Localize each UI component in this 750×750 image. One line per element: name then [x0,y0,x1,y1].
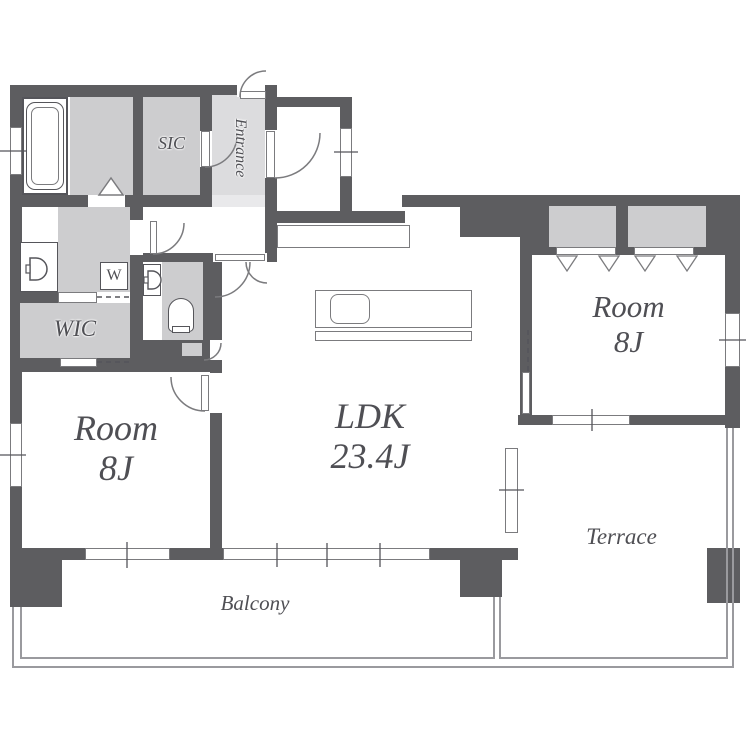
balcony-label: Balcony [60,592,450,620]
door-leaf-entrance [266,131,275,178]
room-right-name: Room [592,289,664,324]
washing-machine-label: W [106,267,121,284]
ldk-name: LDK [335,396,405,436]
window [85,548,170,560]
room-left-label: Room 8J [22,408,210,508]
wall-segment [707,548,740,603]
wall-segment [203,262,210,348]
wall-segment [460,550,502,597]
doorway-gap [88,195,125,207]
window [10,423,22,487]
wall-segment [270,211,410,223]
kitchen-sink [330,294,370,324]
corridor-floor [143,207,265,253]
ldk-floor [460,237,518,262]
room-left-size: 8J [99,448,133,488]
closet-shelf [634,247,694,255]
door-leaf [201,375,209,411]
closet-shelf [556,247,616,255]
door-leaf-ldk [215,254,265,261]
bathroom-dry-area-floor [70,97,133,195]
entrance-hall-floor [277,107,340,211]
room-right-size: 8J [614,324,643,359]
sliding-door-leaf [522,372,530,414]
entrance-label: Entrance [227,93,249,203]
window [725,313,740,367]
terrace-label: Terrace [518,524,725,554]
window [340,128,352,177]
floor-plan: W [0,0,750,750]
room-right-label: Room 8J [532,290,725,380]
closet [628,206,706,247]
ldk-storage-counter [277,225,410,248]
bathtub-inner [31,107,59,185]
washing-machine: W [100,262,128,290]
wall-segment [133,85,143,207]
toilet-base [172,326,190,333]
sliding-opening [60,358,97,367]
doorway-gap [210,340,222,360]
door-leaf [150,221,157,254]
doorway-gap [130,220,143,255]
wall-segment [265,97,277,262]
sic-label: SIC [143,133,200,157]
window-terrace [552,415,630,425]
ldk-size: 23.4J [331,436,410,476]
wic-label: WIC [20,316,130,344]
wall-segment [725,195,740,428]
window [10,127,22,175]
kitchen-counter-edge [315,331,472,341]
room-left-name: Room [74,408,158,448]
wall-segment [20,292,58,303]
washbasin-small [143,264,161,296]
closet [549,206,616,247]
sliding-opening [58,292,97,303]
door-leaf [201,131,210,167]
wall-segment [265,97,352,107]
window-sliding-balcony [223,548,430,560]
wall-segment [10,548,62,607]
washbasin-vanity [20,242,58,292]
door-leaf-toilet [182,343,202,356]
doorway-gap [210,373,222,413]
ldk-label: LDK 23.4J [222,396,518,496]
